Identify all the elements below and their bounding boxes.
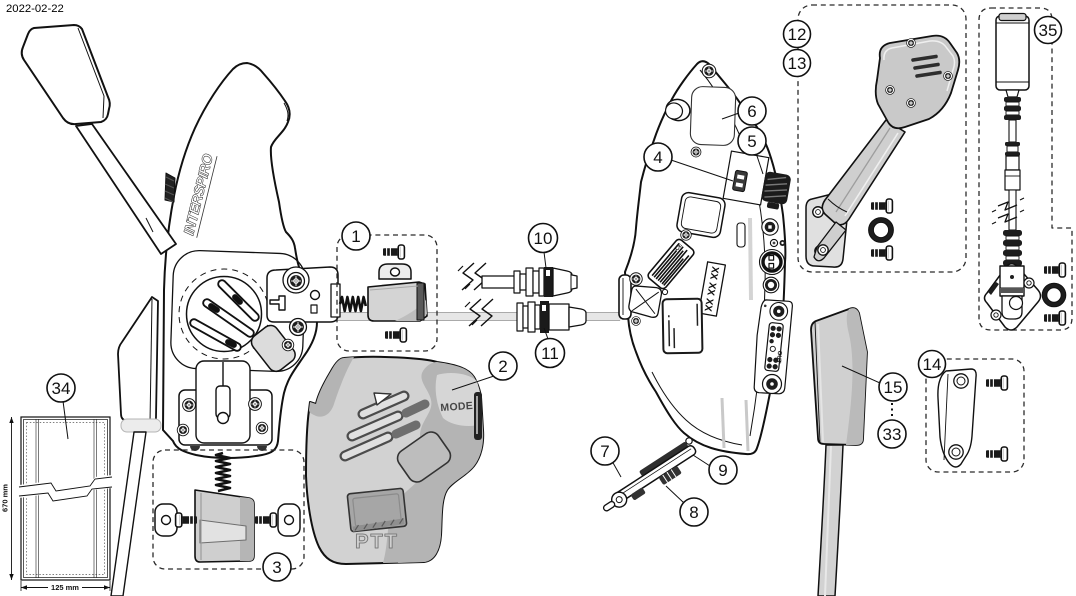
svg-text:14: 14 [923,355,942,374]
svg-text:10: 10 [534,229,553,248]
svg-text:8: 8 [689,503,698,522]
svg-text:670 mm: 670 mm [1,484,10,512]
svg-text:12: 12 [788,25,807,44]
svg-text:13: 13 [788,54,807,73]
svg-text:2: 2 [498,357,507,376]
svg-text:33: 33 [883,425,902,444]
svg-text:6: 6 [747,102,756,121]
svg-text:9: 9 [718,461,727,480]
svg-text:MODE: MODE [440,400,473,414]
svg-text:PTT: PTT [355,531,399,553]
svg-text:11: 11 [541,344,559,363]
svg-text:1: 1 [351,227,360,246]
svg-text:3: 3 [272,558,281,577]
svg-text:2022-02-22: 2022-02-22 [6,3,64,15]
svg-text:4: 4 [653,148,662,167]
svg-text:7: 7 [600,442,609,461]
svg-text:15: 15 [884,378,903,397]
svg-text:34: 34 [52,379,71,398]
svg-text:35: 35 [1039,21,1058,40]
svg-text:125 mm: 125 mm [51,583,79,592]
svg-text:5: 5 [747,132,756,151]
